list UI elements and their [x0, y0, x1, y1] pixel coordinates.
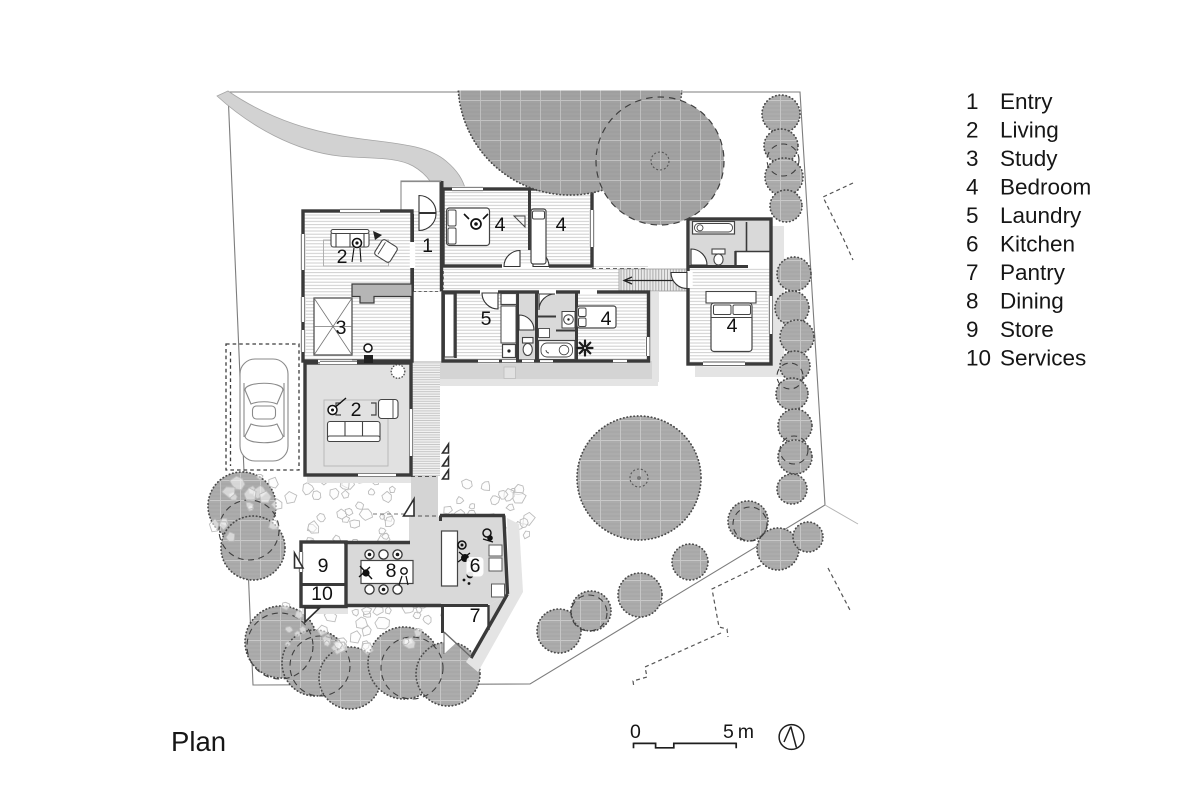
svg-text:8: 8 [386, 560, 397, 582]
svg-text:10: 10 [311, 583, 333, 605]
svg-text:1: 1 [422, 235, 433, 257]
svg-text:Bedroom: Bedroom [1000, 175, 1091, 200]
svg-text:3: 3 [966, 146, 979, 171]
svg-text:9: 9 [966, 317, 979, 342]
svg-text:7: 7 [966, 260, 979, 285]
svg-text:6: 6 [470, 555, 481, 577]
svg-text:4: 4 [556, 214, 567, 236]
svg-text:Store: Store [1000, 317, 1054, 342]
svg-text:4: 4 [727, 315, 738, 337]
svg-text:4: 4 [601, 308, 612, 330]
svg-text:Pantry: Pantry [1000, 260, 1066, 285]
svg-text:Living: Living [1000, 118, 1059, 143]
svg-text:9: 9 [318, 555, 329, 577]
svg-text:2: 2 [337, 246, 348, 268]
svg-text:3: 3 [336, 317, 347, 339]
svg-text:5: 5 [966, 203, 979, 228]
svg-text:2: 2 [351, 399, 362, 421]
svg-text:5: 5 [481, 308, 492, 330]
svg-text:4: 4 [966, 175, 979, 200]
svg-text:1: 1 [966, 89, 979, 114]
svg-text:Entry: Entry [1000, 89, 1053, 114]
svg-text:5 m: 5 m [723, 721, 754, 743]
svg-text:8: 8 [966, 289, 979, 314]
svg-text:Services: Services [1000, 346, 1086, 371]
svg-text:10: 10 [966, 346, 991, 371]
svg-text:4: 4 [495, 214, 506, 236]
svg-text:7: 7 [470, 605, 481, 627]
svg-text:Study: Study [1000, 146, 1058, 171]
svg-text:Kitchen: Kitchen [1000, 232, 1075, 257]
svg-text:2: 2 [966, 118, 979, 143]
svg-text:0: 0 [630, 721, 641, 743]
svg-text:Dining: Dining [1000, 289, 1064, 314]
svg-text:Plan: Plan [171, 726, 226, 757]
svg-text:6: 6 [966, 232, 979, 257]
svg-text:Laundry: Laundry [1000, 203, 1082, 228]
